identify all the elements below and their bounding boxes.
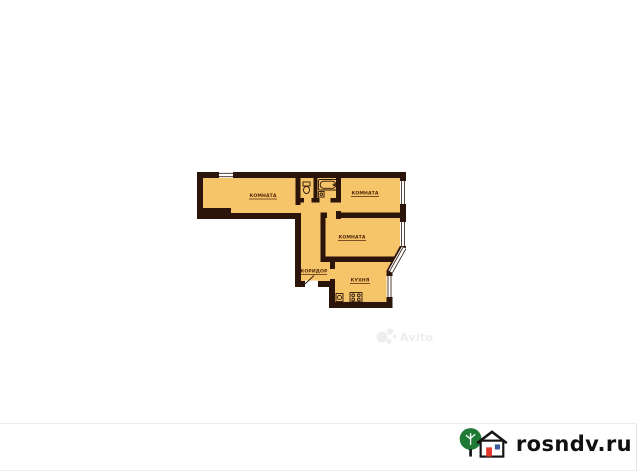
listing-photo: КОМНАТА КОМНАТА КОМНАТА КОРИДОР КУХНЯ Av…	[0, 0, 640, 473]
avito-watermark-text: Avito	[400, 331, 434, 344]
room-label-middle-right: КОМНАТА	[338, 235, 365, 241]
room-label-top-right: КОМНАТА	[351, 191, 378, 197]
site-logo-icon	[458, 425, 510, 463]
avito-logo-dot	[393, 335, 397, 339]
site-logo: rosndv.ru	[458, 424, 632, 464]
room-label-corridor: КОРИДОР	[301, 269, 328, 275]
floor-plan-image: КОМНАТА КОМНАТА КОМНАТА КОРИДОР КУХНЯ Av…	[0, 0, 640, 473]
avito-logo-dot	[377, 332, 388, 343]
house-window-icon	[495, 444, 500, 449]
avito-watermark: Avito	[377, 329, 434, 345]
site-logo-text: rosndv.ru	[516, 432, 632, 456]
house-icon	[478, 432, 506, 457]
house-door-icon	[486, 447, 492, 456]
room-label-kitchen: КУХНЯ	[351, 278, 370, 284]
room-label-left: КОМНАТА	[249, 193, 276, 199]
avito-logo-dot	[387, 339, 392, 344]
avito-logo-dot	[387, 329, 393, 335]
